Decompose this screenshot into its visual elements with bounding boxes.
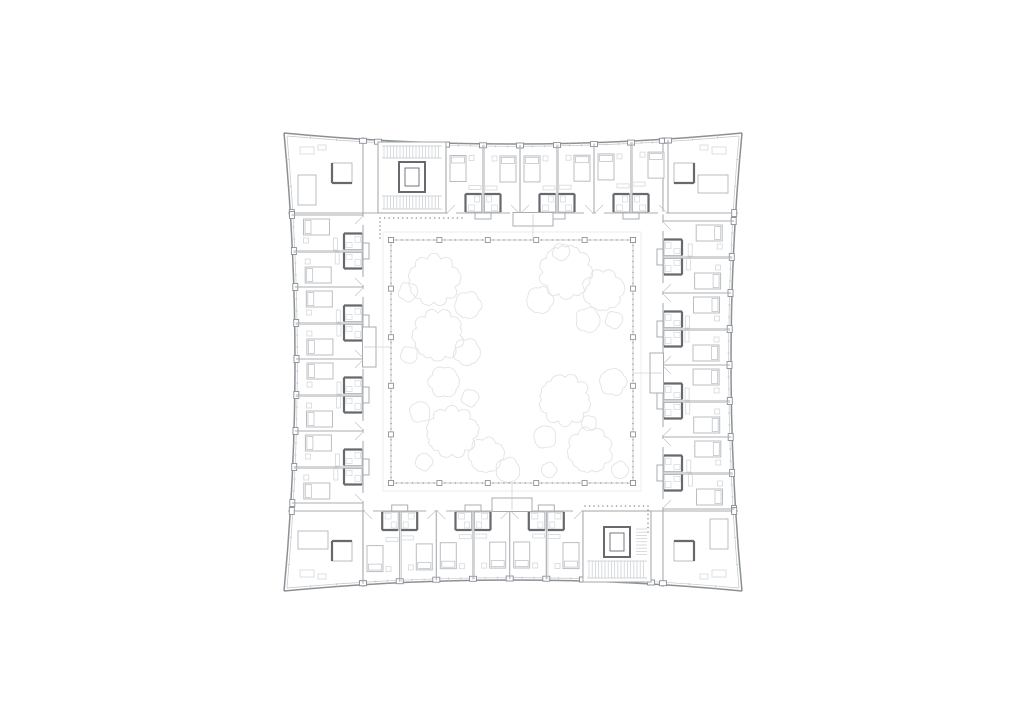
bed [490, 542, 506, 568]
room [307, 396, 365, 429]
room [548, 510, 581, 569]
bed [500, 156, 516, 182]
corridor-bump [363, 243, 369, 259]
desk [687, 460, 691, 472]
bed [695, 273, 721, 289]
corridor-bump [475, 213, 491, 219]
tree [398, 283, 417, 302]
bedside-table [304, 475, 309, 480]
bed [307, 363, 333, 379]
room [305, 433, 364, 466]
room [307, 361, 364, 394]
room-band-bottom [363, 505, 583, 584]
bathroom [664, 475, 682, 491]
desk [617, 184, 629, 188]
courtyard-post [631, 335, 636, 340]
bathroom [548, 512, 564, 530]
bathroom [614, 194, 630, 212]
desk [686, 402, 690, 414]
tree [408, 253, 461, 305]
courtyard-post [437, 238, 442, 243]
desk [334, 238, 338, 250]
bathroom [485, 194, 501, 212]
bed [306, 291, 332, 307]
bed [514, 542, 530, 568]
room [305, 252, 364, 285]
corridor-bump [657, 465, 663, 481]
bed [697, 489, 723, 505]
tree-cluster-southeast [534, 369, 629, 479]
corridor-bump [392, 505, 408, 511]
floor-plan-canvas [0, 0, 1024, 724]
bathroom [344, 253, 362, 269]
bedside-table [307, 403, 312, 408]
stair-core-bottom [583, 511, 651, 582]
table [712, 570, 726, 577]
courtyard-border [389, 238, 636, 486]
bed [416, 544, 432, 570]
bed [698, 175, 728, 193]
desk [688, 244, 692, 256]
room [662, 402, 720, 435]
room-band-top [446, 140, 668, 219]
bed [524, 156, 540, 182]
wardrobe [318, 574, 326, 579]
bedside-table [305, 454, 310, 459]
tree-cluster-northwest [398, 253, 482, 397]
corridor-bump [363, 459, 369, 475]
corridor-bump [538, 505, 554, 511]
desk [633, 182, 645, 186]
desk [459, 535, 471, 539]
courtyard-paving [383, 232, 641, 491]
tree [496, 457, 520, 482]
bed [298, 175, 316, 205]
tree [567, 427, 612, 472]
room [475, 510, 508, 568]
bed [367, 546, 383, 572]
bathroom [344, 306, 362, 322]
bedside-table [307, 382, 312, 387]
room [662, 295, 720, 328]
bathroom [344, 469, 362, 485]
bedside-table [307, 331, 312, 336]
tree [534, 426, 556, 448]
bed [696, 225, 722, 241]
room [304, 217, 365, 250]
desk [475, 534, 487, 538]
tree [415, 453, 433, 471]
stair-core-top [378, 142, 446, 213]
corridor-bump [657, 321, 663, 337]
desk [689, 474, 693, 486]
tree [461, 390, 479, 407]
room [365, 510, 398, 572]
facade-right [731, 133, 742, 591]
room-band-left [292, 215, 370, 503]
tree [539, 245, 593, 299]
bed [695, 441, 721, 457]
tree [453, 339, 480, 366]
table [712, 147, 726, 154]
desk [401, 536, 413, 540]
table [300, 570, 314, 577]
desk [687, 258, 691, 270]
desk [337, 382, 341, 394]
corridor-bump [363, 387, 369, 403]
room [306, 289, 364, 322]
bathroom [664, 456, 682, 472]
corridor-dotted [379, 217, 649, 533]
bed [694, 417, 720, 433]
bed [298, 531, 328, 549]
bedside-table [715, 409, 720, 414]
bathroom [344, 234, 362, 250]
wardrobe [700, 574, 708, 579]
tree [576, 307, 600, 332]
bed [693, 369, 719, 385]
desk [485, 186, 497, 190]
tree [400, 347, 417, 364]
bed [710, 519, 728, 549]
bathroom [475, 512, 491, 530]
bed [598, 154, 614, 180]
room [662, 439, 721, 472]
desk [337, 396, 341, 408]
bathroom [664, 240, 682, 256]
bed [648, 152, 664, 178]
desk [469, 186, 481, 190]
desk [337, 324, 341, 336]
bathroom [344, 397, 362, 413]
tree [611, 461, 628, 479]
courtyard-post [631, 432, 636, 437]
corridor-bump [465, 505, 481, 511]
tree [541, 462, 557, 478]
bathroom [674, 541, 694, 561]
bed [563, 543, 579, 569]
bed [307, 411, 333, 427]
courtyard-post [631, 383, 636, 388]
bedside-table [715, 316, 720, 321]
bathroom [664, 403, 682, 419]
bathroom [664, 312, 682, 328]
bed [304, 483, 330, 499]
desk [685, 330, 689, 342]
bedside-table [718, 481, 723, 486]
room [401, 510, 434, 570]
bathroom [466, 194, 482, 212]
bedside-table [492, 156, 497, 161]
room [307, 324, 365, 357]
courtyard-post [631, 286, 636, 291]
bathroom [559, 194, 575, 212]
bathroom [540, 194, 556, 212]
tree [410, 402, 430, 423]
tree [605, 312, 623, 329]
desk [543, 186, 555, 190]
desk [548, 535, 560, 539]
bathroom [401, 512, 417, 530]
wardrobe [318, 145, 326, 150]
bathroom [344, 450, 362, 466]
bathroom [674, 163, 694, 183]
bed [694, 297, 720, 313]
room [662, 367, 720, 400]
bedside-table [716, 460, 721, 465]
bathroom [664, 384, 682, 400]
bedside-table [716, 265, 721, 270]
room [662, 223, 723, 256]
facade-top [284, 133, 742, 144]
courtyard-post [389, 238, 394, 243]
courtyard-post [631, 481, 636, 486]
desk [335, 454, 339, 466]
bed [307, 339, 333, 355]
desk [685, 388, 689, 400]
bedside-table [566, 155, 571, 160]
courtyard-post [631, 238, 636, 243]
desk [334, 468, 338, 480]
bedside-table [714, 388, 719, 393]
tree [428, 367, 460, 397]
bedside-table [306, 310, 311, 315]
bathroom [344, 325, 362, 341]
courtyard-post [485, 481, 490, 486]
bathroom [456, 512, 472, 530]
courtyard-post [389, 335, 394, 340]
bathroom [633, 194, 649, 212]
bedside-table [408, 565, 413, 570]
bed [440, 543, 456, 569]
desk [686, 316, 690, 328]
bedside-table [717, 244, 722, 249]
room [512, 510, 545, 568]
tree-cluster-southwest [410, 390, 520, 483]
tree [600, 369, 628, 396]
courtyard-post [485, 238, 490, 243]
corner-apartment-top-left [298, 145, 352, 205]
courtyard-post [582, 481, 587, 486]
desk [386, 538, 398, 542]
bed [304, 219, 330, 235]
room [662, 474, 723, 507]
bathroom [382, 512, 398, 530]
room [662, 258, 721, 291]
tree [412, 309, 464, 361]
table [300, 147, 314, 154]
bedside-table [482, 563, 487, 568]
bed [305, 435, 331, 451]
bedside-table [469, 156, 474, 161]
corner-apartment-bottom-right [674, 519, 728, 579]
bedside-table [714, 337, 719, 342]
tree [527, 287, 554, 314]
courtyard-post [389, 383, 394, 388]
bedside-table [304, 238, 309, 243]
bedside-table [459, 564, 464, 569]
page [0, 0, 1024, 724]
room [438, 510, 471, 569]
corridor-walls [288, 137, 738, 587]
room [448, 156, 482, 215]
courtyard-post [437, 481, 442, 486]
wardrobe [700, 145, 708, 150]
courtyard-post [389, 286, 394, 291]
room [633, 152, 667, 214]
stair-cores [378, 142, 651, 582]
facade-bottom [284, 580, 742, 591]
bed [574, 155, 590, 181]
courtyard-trees [398, 244, 628, 483]
facade-left [284, 133, 295, 591]
tree [426, 405, 479, 457]
room [662, 330, 719, 363]
corridor-bump [657, 393, 663, 409]
facade [284, 133, 742, 591]
room [304, 468, 365, 501]
bathroom [332, 163, 352, 183]
tree-cluster-northeast [527, 244, 625, 333]
vestibules [363, 213, 664, 512]
bathroom [664, 259, 682, 275]
courtyard-post [534, 238, 539, 243]
bedside-table [533, 563, 538, 568]
courtyard-post [534, 481, 539, 486]
bed [305, 267, 331, 283]
desk [335, 252, 339, 264]
corner-apartment-top-right [674, 145, 728, 193]
corridor-bump [657, 249, 663, 265]
room-band-right [657, 221, 735, 509]
bathroom [529, 512, 545, 530]
bedside-table [386, 567, 391, 572]
corridor-bump [623, 213, 639, 219]
room [559, 155, 593, 214]
bathroom [332, 541, 352, 561]
bed [450, 156, 466, 182]
tree [455, 292, 482, 319]
bedside-table [543, 156, 548, 161]
desk [336, 310, 340, 322]
courtyard-post [582, 238, 587, 243]
bed [693, 345, 719, 361]
tree [583, 270, 625, 311]
bedside-table [305, 259, 310, 264]
desk [533, 534, 545, 538]
room [522, 156, 556, 215]
room [485, 156, 519, 214]
bedside-table [617, 154, 622, 159]
bathroom [344, 378, 362, 394]
desk [559, 185, 571, 189]
corner-apartment-bottom-left [298, 531, 352, 579]
room [596, 154, 630, 215]
bedside-table [640, 152, 645, 157]
bathroom [664, 331, 682, 347]
tree [468, 437, 505, 472]
courtyard-post [389, 432, 394, 437]
courtyard-post [389, 481, 394, 486]
bedside-table [555, 564, 560, 569]
